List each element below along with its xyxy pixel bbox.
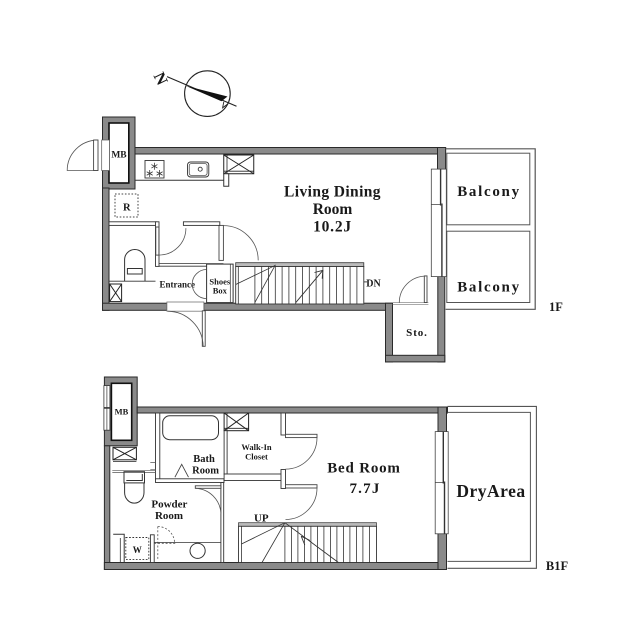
- svg-text:Living Dining: Living Dining: [284, 184, 381, 201]
- svg-text:Closet: Closet: [245, 452, 268, 462]
- svg-text:Balcony: Balcony: [457, 184, 521, 200]
- svg-text:Room: Room: [313, 201, 353, 218]
- svg-text:Walk-In: Walk-In: [241, 442, 272, 452]
- svg-text:DN: DN: [366, 278, 381, 289]
- svg-text:R: R: [123, 203, 131, 214]
- svg-text:Sto.: Sto.: [406, 327, 428, 339]
- svg-text:Entrance: Entrance: [160, 280, 196, 290]
- svg-text:Bed Room: Bed Room: [327, 460, 400, 476]
- svg-text:10.2J: 10.2J: [313, 219, 352, 236]
- svg-text:MB: MB: [111, 151, 127, 161]
- svg-text:W: W: [133, 545, 142, 555]
- svg-text:Balcony: Balcony: [457, 279, 521, 295]
- svg-text:DryArea: DryArea: [456, 481, 525, 501]
- svg-text:Box: Box: [213, 286, 228, 296]
- svg-text:1F: 1F: [549, 300, 563, 314]
- svg-text:UP: UP: [254, 513, 269, 525]
- svg-text:Powder: Powder: [151, 498, 187, 510]
- svg-text:MB: MB: [115, 407, 129, 417]
- svg-text:Room: Room: [192, 465, 219, 476]
- svg-text:7.7J: 7.7J: [349, 481, 380, 497]
- svg-text:Bath: Bath: [193, 454, 215, 465]
- svg-text:B1F: B1F: [546, 559, 569, 573]
- svg-text:Room: Room: [155, 510, 183, 522]
